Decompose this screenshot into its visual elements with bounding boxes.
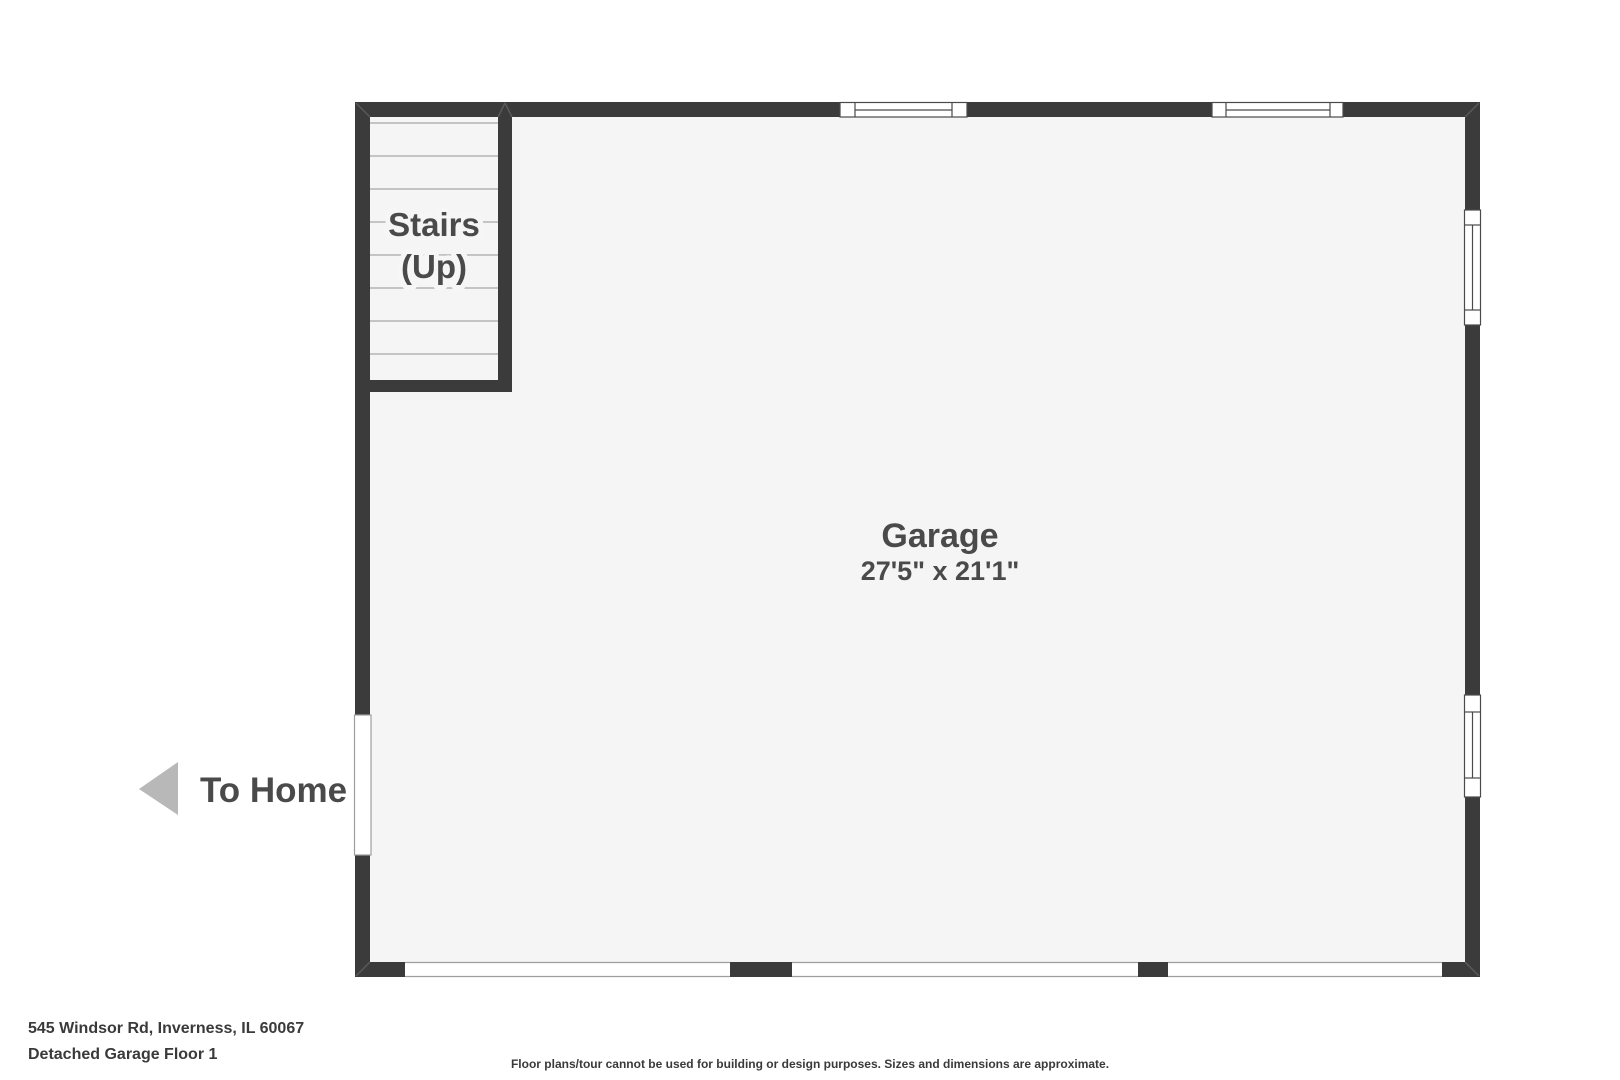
stairs-label-line2: (Up) bbox=[401, 248, 467, 285]
wall-right-upper bbox=[1465, 117, 1480, 210]
floor-plan-canvas: Stairs (Up) Garage 27'5" x 21'1" To Home… bbox=[0, 0, 1620, 1080]
wall-bottom-pier-1 bbox=[730, 962, 792, 977]
to-home-exit: To Home bbox=[139, 762, 347, 815]
wall-bottom-pier-2 bbox=[1138, 962, 1168, 977]
room-dimensions-label: 27'5" x 21'1" bbox=[861, 556, 1020, 586]
window bbox=[1212, 103, 1343, 118]
door-opening-to-home bbox=[355, 715, 372, 855]
room-name-label: Garage bbox=[881, 517, 998, 555]
garage-door-opening bbox=[1168, 962, 1442, 977]
footer-disclaimer: Floor plans/tour cannot be used for buil… bbox=[511, 1057, 1109, 1071]
garage-door-opening bbox=[405, 962, 730, 977]
wall-left-upper bbox=[355, 117, 370, 715]
floor-plan-page: Stairs (Up) Garage 27'5" x 21'1" To Home… bbox=[0, 0, 1620, 1080]
wall-right-lower bbox=[1465, 797, 1480, 962]
footer-floor-label: Detached Garage Floor 1 bbox=[28, 1046, 217, 1063]
window bbox=[1465, 210, 1481, 325]
wall-stairs-bottom bbox=[370, 380, 498, 392]
window bbox=[840, 103, 967, 118]
garage-door-opening bbox=[792, 962, 1138, 977]
window bbox=[1465, 695, 1481, 797]
wall-stairs-right bbox=[498, 117, 512, 392]
stairs-label-line1: Stairs bbox=[388, 206, 480, 243]
arrow-left-icon bbox=[139, 762, 178, 815]
wall-left-lower bbox=[355, 855, 370, 962]
wall-bottom-right-corner bbox=[1442, 962, 1480, 977]
garage-door-openings bbox=[405, 962, 1442, 977]
wall-right-middle bbox=[1465, 325, 1480, 695]
footer-address: 545 Windsor Rd, Inverness, IL 60067 bbox=[28, 1020, 304, 1037]
to-home-label: To Home bbox=[200, 771, 347, 810]
